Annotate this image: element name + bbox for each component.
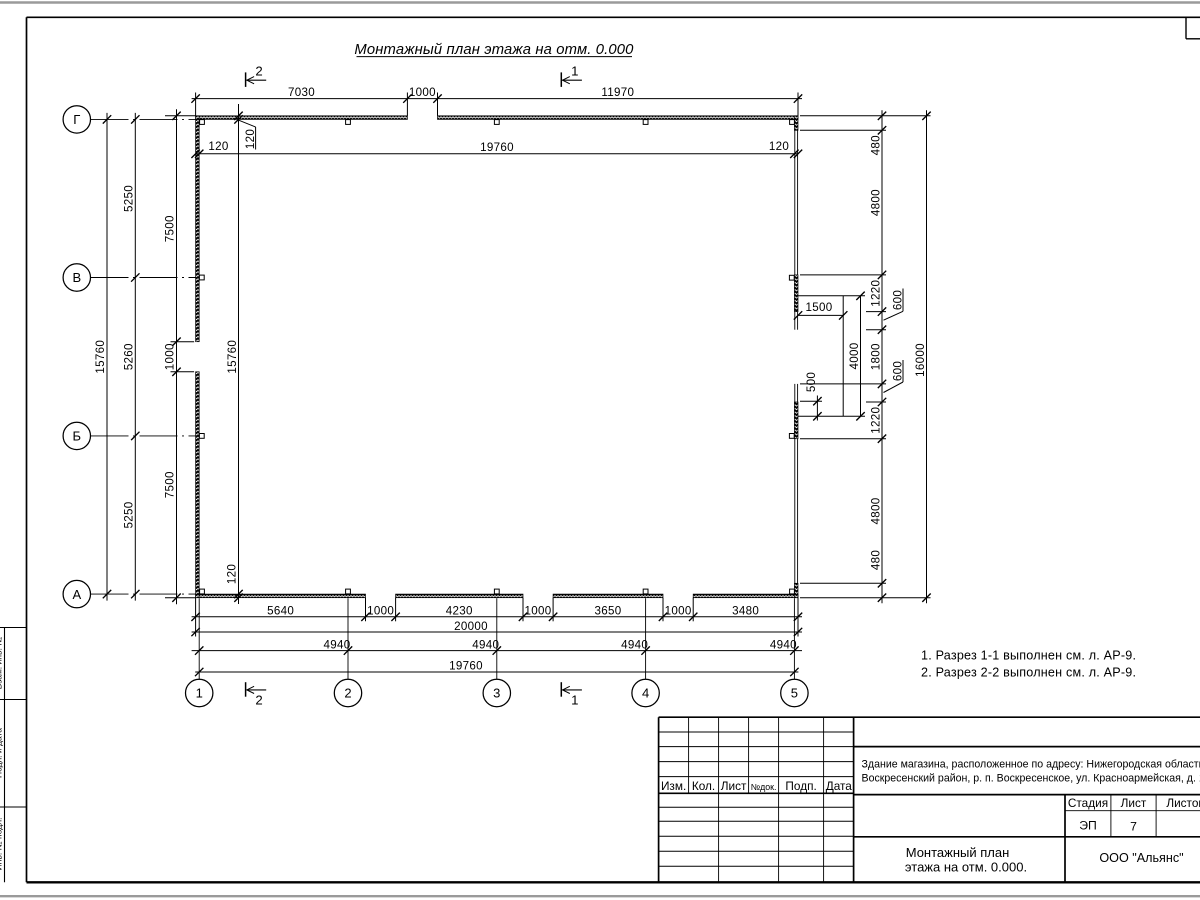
svg-text:Монтажный план этажа на отм. 0: Монтажный план этажа на отм. 0.000 bbox=[354, 42, 634, 58]
svg-text:19760: 19760 bbox=[480, 141, 514, 154]
svg-text:1000: 1000 bbox=[409, 86, 436, 99]
svg-text:3650: 3650 bbox=[595, 605, 622, 618]
svg-text:Воскресенский район, р. п. Вос: Воскресенский район, р. п. Воскресенское… bbox=[862, 773, 1200, 785]
svg-text:1: 1 bbox=[571, 64, 578, 79]
svg-text:ООО "Альянс": ООО "Альянс" bbox=[1099, 851, 1183, 865]
svg-text:Стадия: Стадия bbox=[1068, 796, 1108, 810]
svg-text:Листов: Листов bbox=[1166, 796, 1200, 810]
svg-text:Кол.: Кол. bbox=[692, 779, 715, 793]
svg-text:11970: 11970 bbox=[601, 86, 634, 99]
svg-text:16000: 16000 bbox=[914, 343, 927, 377]
svg-text:7030: 7030 bbox=[288, 86, 315, 99]
svg-text:№док.: №док. bbox=[751, 782, 777, 792]
svg-text:Инв. № подл.: Инв. № подл. bbox=[0, 818, 3, 871]
svg-text:Лист: Лист bbox=[721, 779, 747, 793]
svg-text:Дата: Дата bbox=[826, 779, 853, 793]
svg-text:4940: 4940 bbox=[324, 638, 351, 651]
svg-text:2. Разрез 2-2 выполнен см. л.: 2. Разрез 2-2 выполнен см. л. АР-9. bbox=[921, 666, 1136, 680]
svg-text:120: 120 bbox=[225, 564, 238, 584]
svg-text:Монтажный план: Монтажный план bbox=[906, 845, 1010, 860]
svg-text:1800: 1800 bbox=[870, 343, 883, 370]
svg-text:Подп. и дата: Подп. и дата bbox=[0, 728, 3, 778]
svg-text:4940: 4940 bbox=[621, 638, 648, 651]
svg-text:4940: 4940 bbox=[472, 638, 499, 651]
svg-text:5260: 5260 bbox=[122, 343, 135, 370]
svg-text:1220: 1220 bbox=[870, 407, 883, 434]
svg-text:3: 3 bbox=[493, 686, 500, 701]
svg-text:1500: 1500 bbox=[806, 301, 833, 314]
svg-text:120: 120 bbox=[769, 140, 789, 153]
svg-text:Изм.: Изм. bbox=[661, 779, 686, 793]
svg-text:5: 5 bbox=[791, 686, 798, 701]
svg-text:ЭП: ЭП bbox=[1079, 819, 1097, 833]
svg-text:120: 120 bbox=[244, 129, 257, 149]
svg-text:2: 2 bbox=[255, 693, 262, 708]
svg-text:2: 2 bbox=[255, 64, 262, 79]
svg-text:19760: 19760 bbox=[449, 660, 483, 673]
svg-text:4800: 4800 bbox=[870, 498, 883, 525]
svg-text:5250: 5250 bbox=[122, 185, 135, 212]
svg-text:В: В bbox=[72, 270, 81, 285]
svg-text:600: 600 bbox=[892, 290, 905, 310]
svg-text:1: 1 bbox=[571, 693, 578, 708]
svg-text:1000: 1000 bbox=[164, 343, 177, 370]
svg-text:1000: 1000 bbox=[665, 605, 692, 618]
svg-text:Взам. инв. №: Взам. инв. № bbox=[0, 637, 3, 690]
svg-text:20000: 20000 bbox=[454, 620, 488, 633]
svg-text:4000: 4000 bbox=[848, 343, 861, 370]
svg-text:1000: 1000 bbox=[525, 605, 552, 618]
svg-text:7: 7 bbox=[1130, 820, 1137, 834]
svg-text:480: 480 bbox=[870, 135, 883, 155]
svg-text:4800: 4800 bbox=[870, 189, 883, 216]
svg-text:1. Разрез 1-1 выполнен см. л.: 1. Разрез 1-1 выполнен см. л. АР-9. bbox=[921, 649, 1136, 663]
svg-text:480: 480 bbox=[870, 550, 883, 570]
svg-text:2: 2 bbox=[344, 686, 351, 701]
svg-text:Б: Б bbox=[73, 429, 82, 444]
svg-text:1220: 1220 bbox=[870, 280, 883, 307]
svg-text:4: 4 bbox=[642, 686, 649, 701]
svg-text:4940: 4940 bbox=[770, 638, 797, 651]
svg-text:Г: Г bbox=[73, 112, 80, 127]
svg-text:Здание магазина, расположенное: Здание магазина, расположенное по адресу… bbox=[862, 759, 1200, 771]
svg-text:3480: 3480 bbox=[732, 605, 759, 618]
svg-text:Подп.: Подп. bbox=[785, 779, 816, 793]
svg-text:5640: 5640 bbox=[267, 605, 294, 618]
svg-text:500: 500 bbox=[805, 372, 818, 392]
svg-text:1: 1 bbox=[196, 686, 203, 701]
svg-text:А: А bbox=[72, 587, 81, 602]
svg-text:этажа на отм. 0.000.: этажа на отм. 0.000. bbox=[905, 860, 1027, 875]
svg-text:4230: 4230 bbox=[446, 605, 473, 618]
svg-text:15760: 15760 bbox=[94, 340, 107, 374]
svg-text:7500: 7500 bbox=[164, 215, 177, 242]
svg-text:7500: 7500 bbox=[164, 471, 177, 498]
svg-text:120: 120 bbox=[208, 140, 228, 153]
svg-text:Лист: Лист bbox=[1121, 796, 1147, 810]
svg-text:5250: 5250 bbox=[122, 502, 135, 529]
svg-text:1000: 1000 bbox=[367, 605, 394, 618]
svg-text:15760: 15760 bbox=[226, 340, 239, 374]
svg-text:600: 600 bbox=[892, 361, 905, 381]
